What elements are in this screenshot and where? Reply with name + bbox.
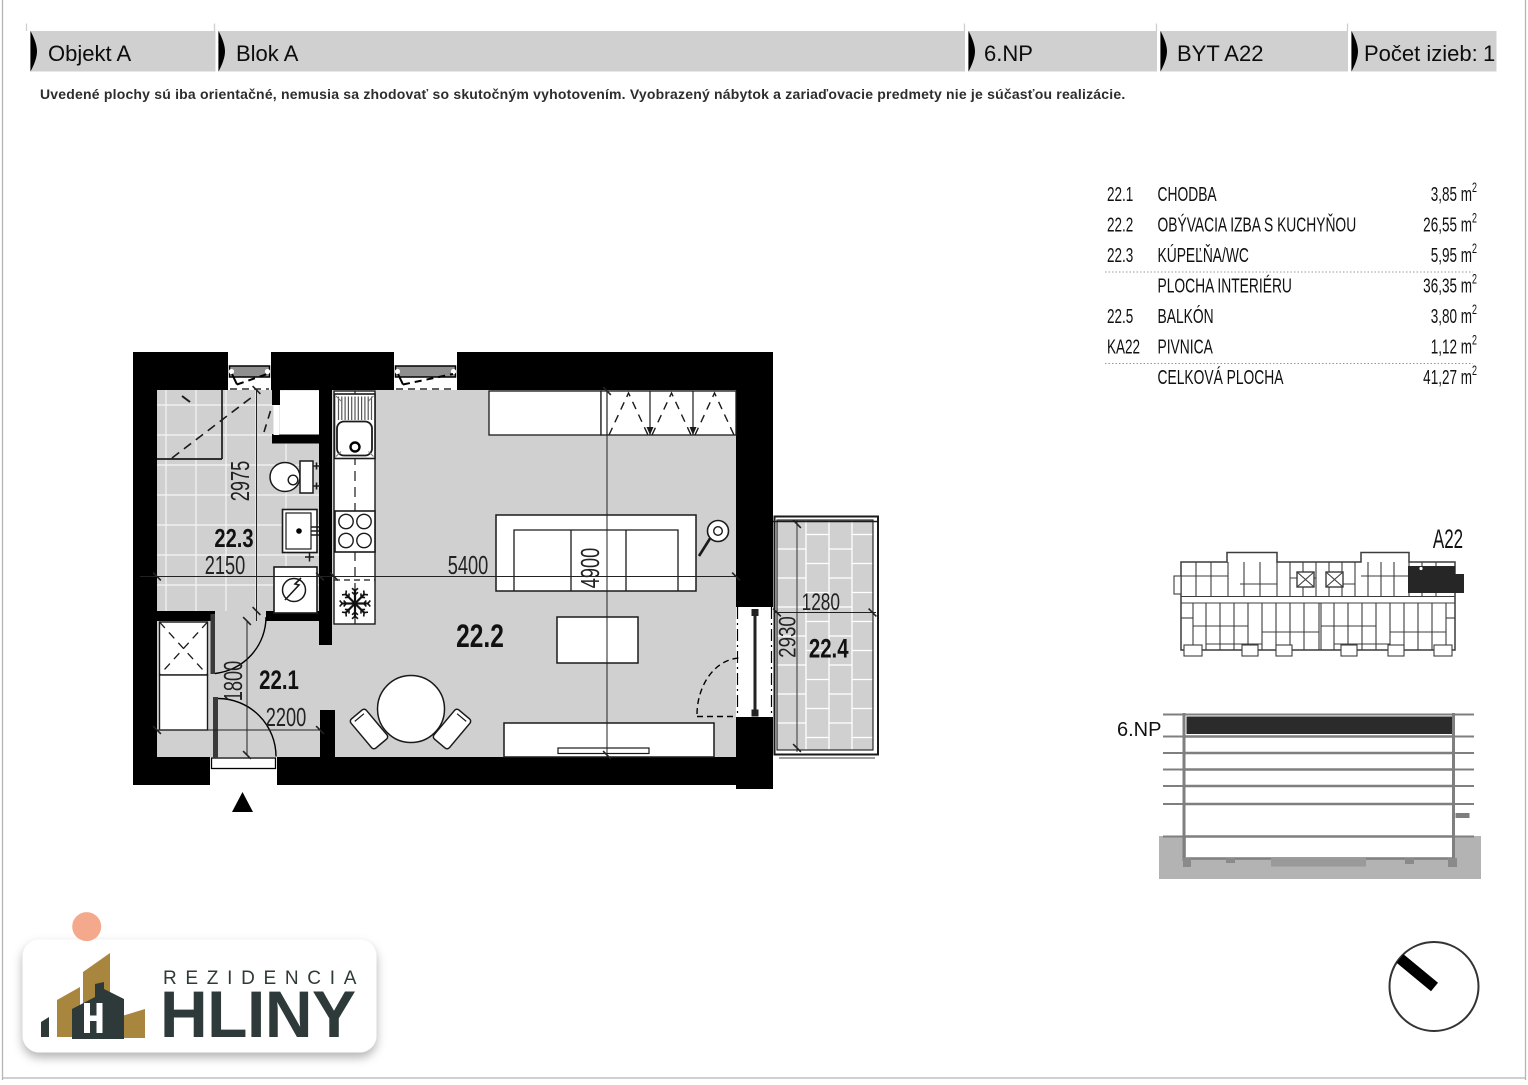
svg-text:OBÝVACIA IZBA S KUCHYŇOU: OBÝVACIA IZBA S KUCHYŇOU xyxy=(1158,213,1357,236)
svg-text:22.3: 22.3 xyxy=(1107,243,1133,267)
svg-text:2975: 2975 xyxy=(226,461,255,501)
svg-text:BALKÓN: BALKÓN xyxy=(1158,303,1214,328)
svg-text:2150: 2150 xyxy=(205,551,245,580)
svg-text:1280: 1280 xyxy=(802,589,840,615)
svg-text:5400: 5400 xyxy=(448,551,488,580)
svg-text:22.3: 22.3 xyxy=(214,524,253,553)
svg-text:36,35 m2: 36,35 m2 xyxy=(1423,273,1477,297)
svg-text:KA22: KA22 xyxy=(1107,335,1140,359)
svg-text:Uvedené plochy sú iba orientač: Uvedené plochy sú iba orientačné, nemusi… xyxy=(40,86,1125,102)
svg-text:22.2: 22.2 xyxy=(456,619,504,655)
svg-text:Objekt A: Objekt A xyxy=(48,41,131,66)
svg-text:PLOCHA INTERIÉRU: PLOCHA INTERIÉRU xyxy=(1158,274,1292,297)
svg-text:1,12 m2: 1,12 m2 xyxy=(1431,334,1477,358)
svg-text:KÚPEĽŇA/WC: KÚPEĽŇA/WC xyxy=(1158,242,1249,267)
svg-text:22.1: 22.1 xyxy=(1107,182,1133,206)
svg-text:3,80 m2: 3,80 m2 xyxy=(1431,303,1477,327)
svg-text:6.NP: 6.NP xyxy=(984,41,1033,66)
svg-text:41,27 m2: 41,27 m2 xyxy=(1423,364,1477,388)
svg-text:CELKOVÁ PLOCHA: CELKOVÁ PLOCHA xyxy=(1158,365,1284,388)
svg-text:5,95 m2: 5,95 m2 xyxy=(1431,242,1477,266)
svg-text:2200: 2200 xyxy=(266,703,306,732)
svg-text:22.1: 22.1 xyxy=(259,667,299,696)
svg-text:22.2: 22.2 xyxy=(1107,213,1133,237)
svg-text:HLINY: HLINY xyxy=(160,977,356,1051)
svg-text:22.4: 22.4 xyxy=(809,634,849,664)
svg-text:2930: 2930 xyxy=(774,616,801,658)
svg-text:3,85 m2: 3,85 m2 xyxy=(1431,181,1477,205)
svg-text:Počet izieb:: Počet izieb: xyxy=(1364,41,1478,66)
svg-text:26,55 m2: 26,55 m2 xyxy=(1423,212,1477,236)
svg-text:PIVNICA: PIVNICA xyxy=(1158,335,1214,358)
svg-text:1: 1 xyxy=(1483,41,1495,66)
svg-text:A22: A22 xyxy=(1433,524,1463,554)
svg-text:CHODBA: CHODBA xyxy=(1158,182,1217,205)
svg-text:BYT A22: BYT A22 xyxy=(1177,41,1263,66)
svg-text:22.5: 22.5 xyxy=(1107,304,1133,328)
svg-text:4900: 4900 xyxy=(576,548,605,588)
svg-text:6.NP: 6.NP xyxy=(1117,719,1161,741)
svg-text:Blok A: Blok A xyxy=(236,41,299,66)
svg-text:1800: 1800 xyxy=(219,661,248,701)
